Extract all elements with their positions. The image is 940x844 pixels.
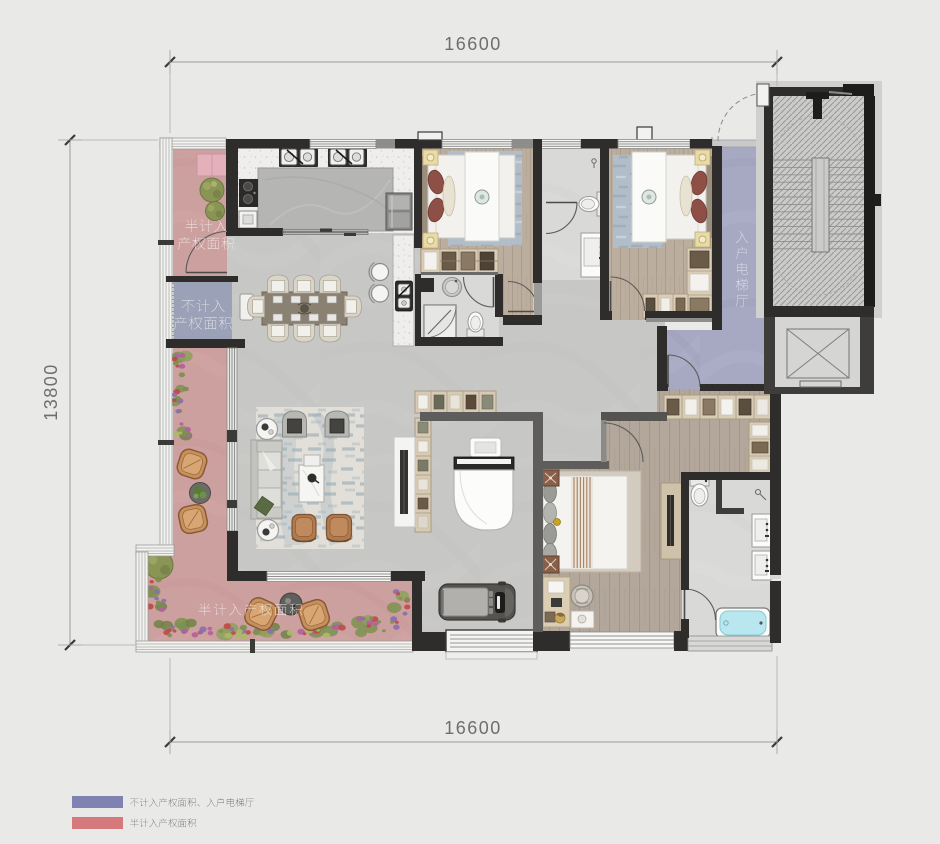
svg-text:16600: 16600 [444,34,502,54]
svg-text:16600: 16600 [444,718,502,738]
svg-text:13800: 13800 [41,363,61,421]
